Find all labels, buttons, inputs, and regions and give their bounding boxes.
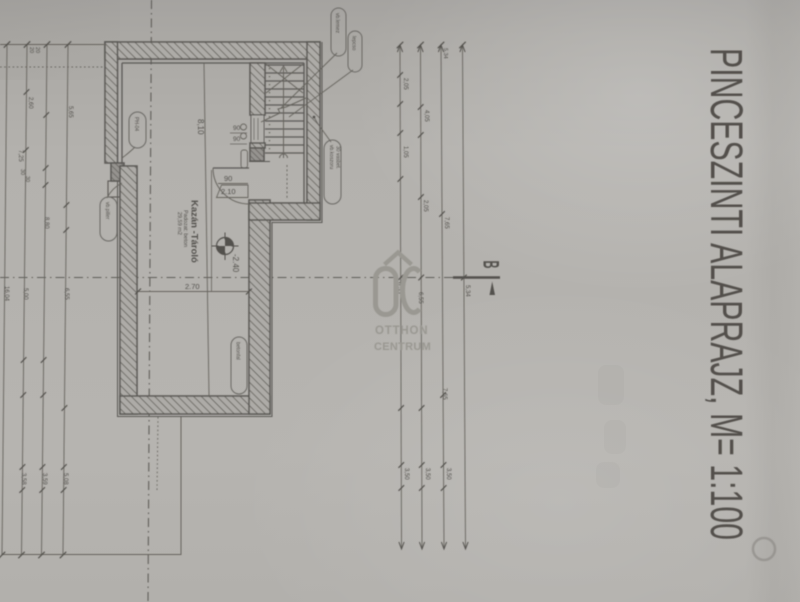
svg-text:5,65: 5,65 xyxy=(67,106,73,118)
svg-text:2.10: 2.10 xyxy=(221,187,236,196)
svg-text:vb.piller: vb.piller xyxy=(104,202,110,220)
svg-text:7,65: 7,65 xyxy=(441,388,447,400)
svg-text:5,00: 5,00 xyxy=(22,288,28,300)
svg-text:30: 30 xyxy=(24,176,30,182)
svg-text:5,34: 5,34 xyxy=(442,48,448,59)
svg-text:3,50: 3,50 xyxy=(424,468,430,480)
svg-text:8,80: 8,80 xyxy=(43,217,49,229)
svg-text:PH-04: PH-04 xyxy=(133,117,139,131)
svg-text:OTTHON: OTTHON xyxy=(375,325,428,337)
svg-text:3,58: 3,58 xyxy=(20,473,26,485)
svg-text:5,34: 5,34 xyxy=(464,285,470,297)
svg-text:-2.40: -2.40 xyxy=(231,254,240,273)
svg-text:20: 20 xyxy=(34,47,40,53)
svg-text:betonfal: betonfal xyxy=(235,342,241,360)
svg-text:vb.lemez: vb.lemez xyxy=(334,13,340,34)
svg-text:90: 90 xyxy=(233,136,241,143)
svg-text:3,59: 3,59 xyxy=(41,473,47,485)
svg-text:7,25: 7,25 xyxy=(17,150,23,162)
svg-text:2,60: 2,60 xyxy=(27,97,33,109)
svg-text:PINCESZINTI ALAPRAJZ, M= 1:100: PINCESZINTI ALAPRAJZ, M= 1:100 xyxy=(701,48,752,540)
svg-text:Kazán -Tároló: Kazán -Tároló xyxy=(189,200,200,263)
svg-text:8,10: 8,10 xyxy=(196,119,205,135)
svg-text:2,05: 2,05 xyxy=(402,78,408,90)
svg-text:30 vasbet.: 30 vasbet. xyxy=(335,146,341,169)
svg-text:2,05: 2,05 xyxy=(422,200,428,212)
svg-text:4,05: 4,05 xyxy=(423,110,429,122)
svg-text:90: 90 xyxy=(224,174,232,183)
svg-text:16,04: 16,04 xyxy=(3,286,9,302)
svg-text:7,65: 7,65 xyxy=(443,217,449,229)
svg-text:6,55: 6,55 xyxy=(63,288,69,300)
svg-text:3,50: 3,50 xyxy=(403,468,409,480)
svg-text:90: 90 xyxy=(233,125,241,132)
svg-text:B: B xyxy=(478,261,503,269)
svg-text:30: 30 xyxy=(19,169,25,175)
svg-text:2.70: 2.70 xyxy=(185,282,200,291)
svg-text:20: 20 xyxy=(28,47,34,53)
svg-text:6,55: 6,55 xyxy=(417,292,423,304)
svg-text:3,50: 3,50 xyxy=(445,468,451,480)
svg-text:CENTRUM: CENTRUM xyxy=(374,341,431,353)
svg-text:29,59 m2: 29,59 m2 xyxy=(176,212,182,235)
svg-text:lepcso: lepcso xyxy=(351,36,357,51)
svg-text:vb.koszoru: vb.koszoru xyxy=(328,145,334,169)
svg-text:1,05: 1,05 xyxy=(402,146,408,158)
svg-text:5,08: 5,08 xyxy=(62,473,68,485)
